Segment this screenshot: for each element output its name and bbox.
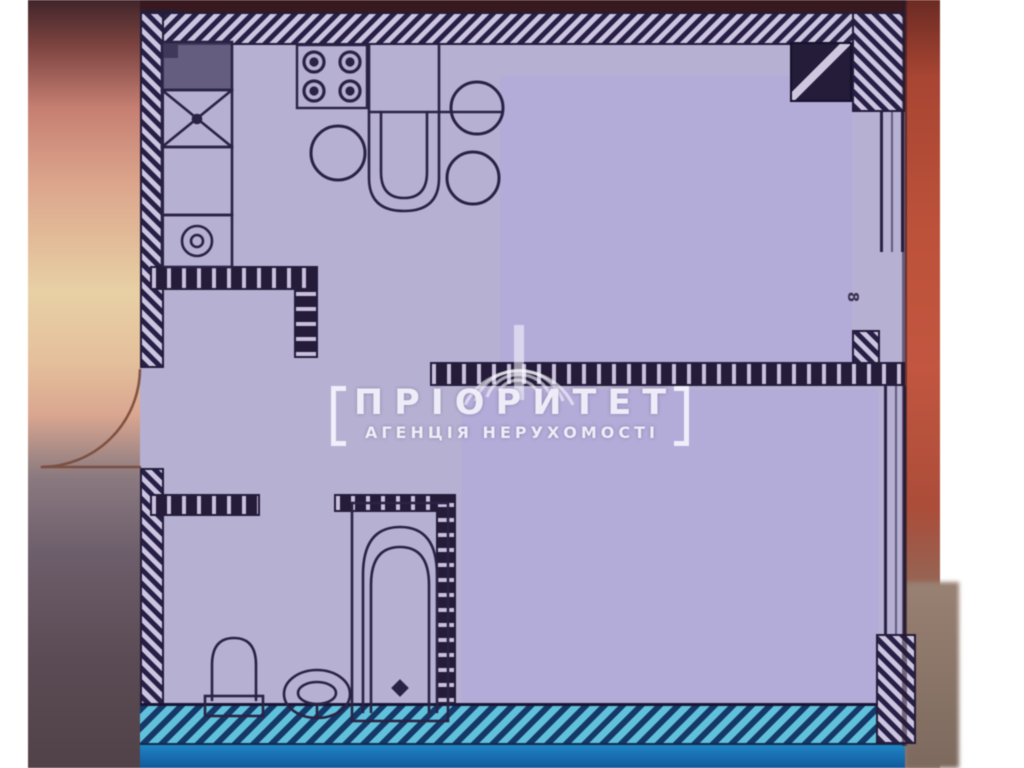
screenshot-canvas: 8 ПРІОРИТЕТ АГЕНЦІЯ НЕРУХОМОСТІ xyxy=(0,0,1024,768)
scanned-floor-plan-photo: 8 ПРІОРИТЕТ АГЕНЦІЯ НЕРУХОМОСТІ xyxy=(0,0,1024,768)
stool xyxy=(451,82,503,134)
bathtub-icon xyxy=(352,503,448,721)
toilet-icon xyxy=(205,638,263,716)
washing-machine-icon xyxy=(162,215,232,267)
watermark-title: ПРІОРИТЕТ xyxy=(332,383,688,423)
stool xyxy=(447,152,499,204)
kitchen-sink-icon xyxy=(162,90,232,147)
dimension-label: 8 xyxy=(844,292,862,302)
washbasin-icon xyxy=(284,670,350,718)
stool xyxy=(311,126,365,180)
dining-table xyxy=(369,45,502,211)
stove-icon xyxy=(297,45,367,108)
watermark-bracket-left-icon xyxy=(331,386,346,446)
watermark-bracket-right-icon xyxy=(674,386,689,446)
entrance-door-swing xyxy=(42,370,140,467)
kitchen-counter xyxy=(162,147,232,215)
kitchen-counter-top xyxy=(162,42,232,90)
watermark-subtitle: АГЕНЦІЯ НЕРУХОМОСТІ xyxy=(330,423,690,442)
